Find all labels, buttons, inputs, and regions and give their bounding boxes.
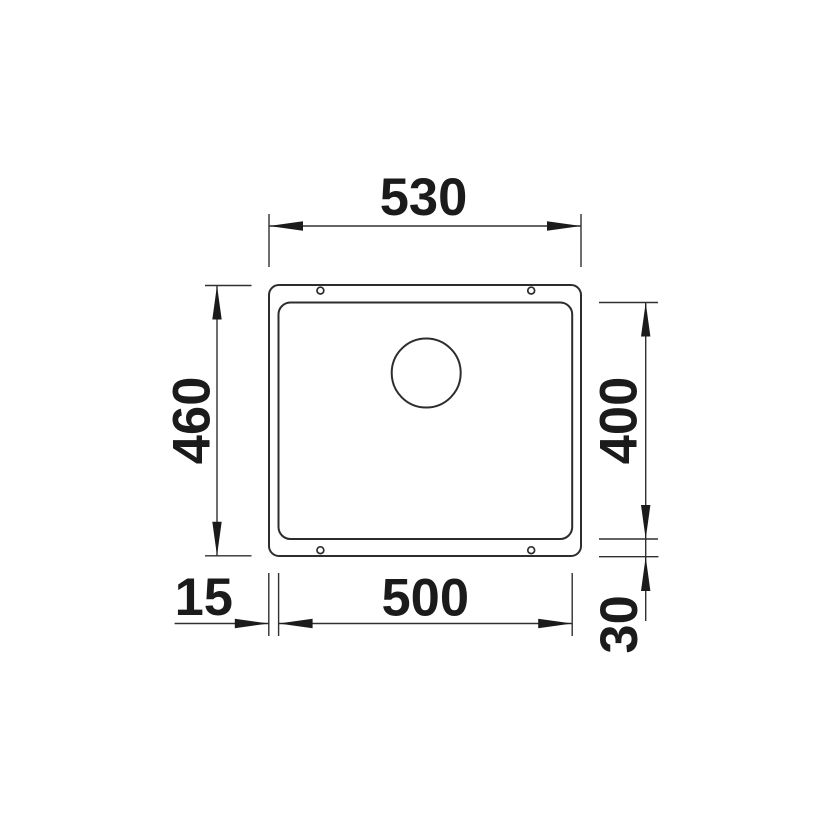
svg-text:400: 400 — [590, 377, 649, 465]
svg-text:30: 30 — [590, 595, 649, 653]
svg-text:460: 460 — [163, 377, 222, 465]
svg-text:500: 500 — [381, 569, 469, 628]
svg-text:15: 15 — [175, 568, 233, 627]
svg-text:530: 530 — [380, 168, 468, 227]
